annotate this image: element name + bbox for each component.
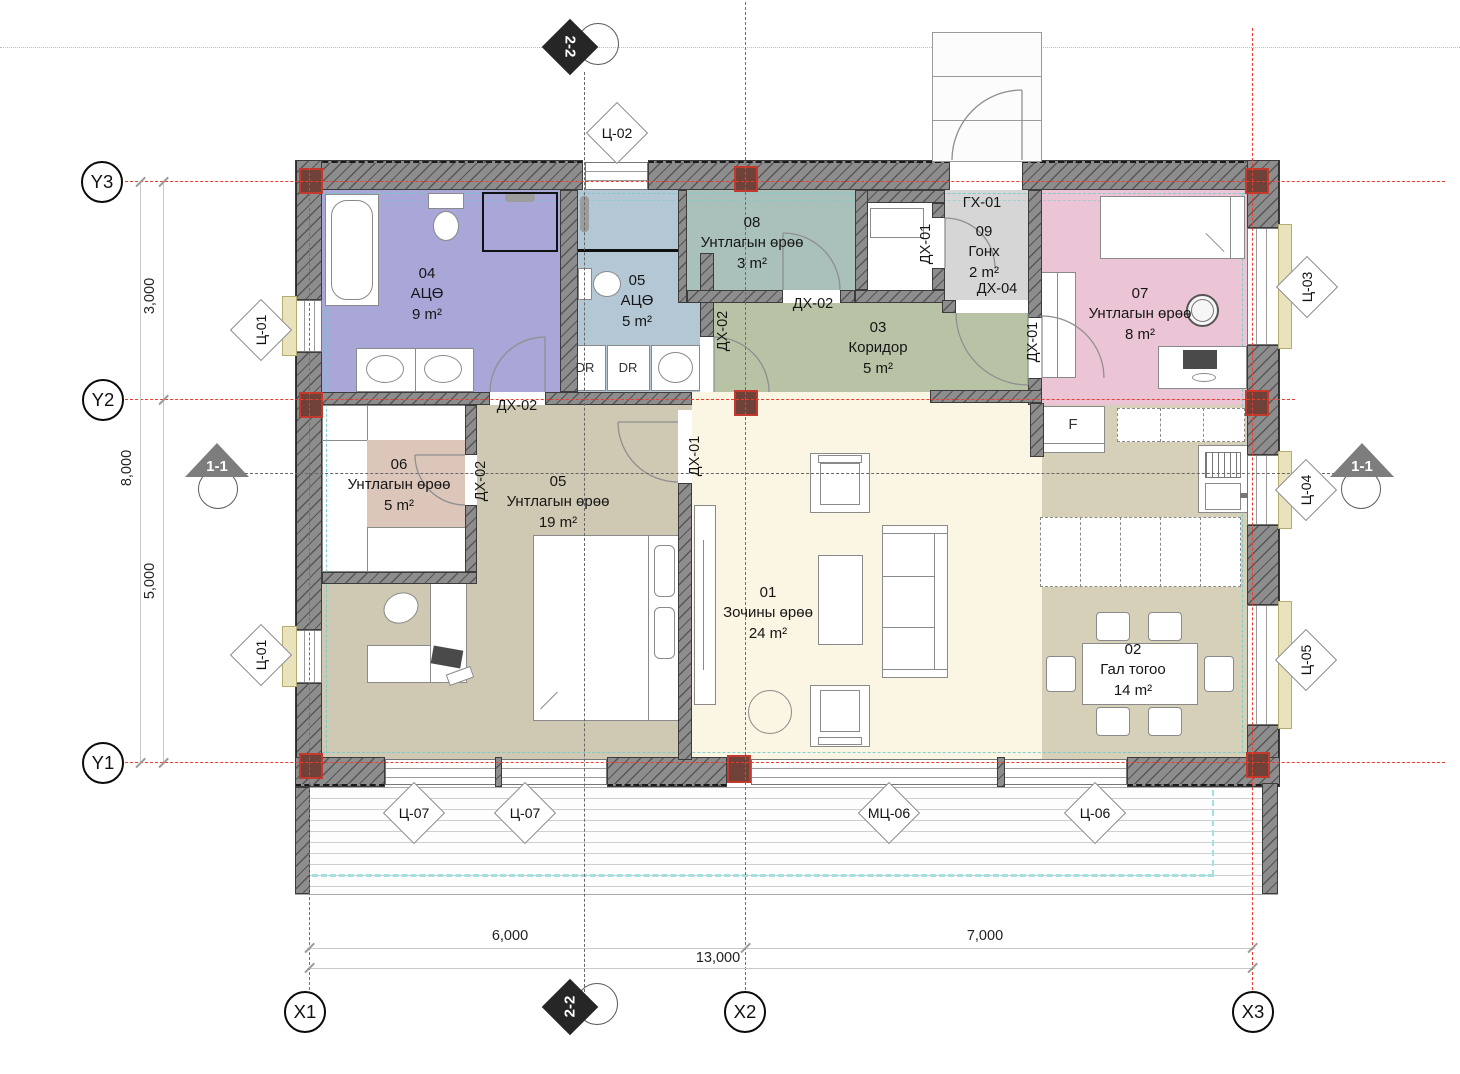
grid-line-y3 [120, 181, 1445, 182]
dimension-text: 7,000 [945, 928, 1025, 944]
axis-bubble-x1: X1 [284, 991, 326, 1033]
grid-line-x1 [309, 168, 310, 1010]
room-label-06: 06Унтлагын өрөө5 m² [319, 455, 479, 516]
door-tag-dh02: ДХ-02 [715, 301, 731, 361]
section-marker-label: 1-1 [1332, 458, 1392, 475]
grid-line-y2 [120, 399, 1295, 400]
window-tag-c01: Ц-01 [235, 629, 287, 681]
room-label-03: 03Коридор5 m² [798, 318, 958, 379]
room-label-04: 04АЦӨ9 m² [347, 264, 507, 325]
door-arc-vestibule [956, 313, 1028, 385]
dimension-line [163, 182, 164, 763]
section-marker-label: 2-2 [562, 992, 579, 1022]
door-tag-dh01: ДХ-01 [1025, 312, 1041, 372]
window-tag-c02: Ц-02 [591, 107, 643, 159]
window-tag-c07: Ц-07 [499, 787, 551, 839]
door-arc-entrance [952, 90, 1022, 160]
dimension-line [140, 182, 141, 763]
room-label-01: 01Зочины өрөө24 m² [688, 583, 848, 644]
room-label-07: 07Унтлагын өрөө8 m² [1060, 284, 1220, 345]
window-tag-c01: Ц-01 [235, 304, 287, 356]
axis-bubble-x3: X3 [1232, 991, 1274, 1033]
door-tag-dh02: ДХ-02 [477, 398, 557, 414]
dimension-text: 5,000 [142, 551, 158, 611]
door-tag-gh01: ГХ-01 [942, 195, 1022, 211]
door-tag-dh02: ДХ-02 [773, 296, 853, 312]
axis-bubble-y3: Y3 [81, 161, 123, 203]
window-tag-c06: Ц-06 [1069, 787, 1121, 839]
grid-line-y1 [120, 762, 1445, 763]
dimension-text: 8,000 [119, 438, 135, 498]
section-line-2-2 [584, 72, 585, 1002]
door-tag-dh04: ДХ-04 [957, 281, 1037, 297]
section-marker-label: 2-2 [562, 32, 579, 62]
room-label-08: 08Унтлагын өрөө3 m² [672, 213, 832, 274]
dimension-text: 13,000 [678, 950, 758, 966]
grid-line-x3 [1252, 28, 1253, 1010]
grid-line-x2 [745, 2, 746, 1010]
dimension-text: 6,000 [470, 928, 550, 944]
room-label-02: 02Гал тогоо14 m² [1053, 640, 1213, 701]
dresser-label: DR [617, 360, 639, 375]
axis-bubble-x2: X2 [724, 991, 766, 1033]
door-arcs-overlay [0, 0, 1460, 1074]
dimension-text: 3,000 [142, 266, 158, 326]
fridge-label: F [1063, 416, 1083, 433]
room-label-09: 09Гонх2 m² [904, 222, 1064, 283]
dimension-line [307, 948, 1255, 949]
dresser-label: DR [574, 360, 596, 375]
room-label-05-bath: 05АЦӨ5 m² [557, 271, 717, 332]
door-arc-bath-04 [490, 337, 545, 392]
window-tag-c07: Ц-07 [388, 787, 440, 839]
window-tag-c05: Ц-05 [1280, 634, 1332, 686]
window-tag-mc06: МЦ-06 [863, 787, 915, 839]
window-tag-c04: Ц-04 [1280, 464, 1332, 516]
axis-bubble-y2: Y2 [82, 379, 124, 421]
window-tag-c03: Ц-03 [1281, 261, 1333, 313]
room-label-05-bedroom: 05Унтлагын өрөө19 m² [478, 472, 638, 533]
floor-plan-canvas: 3,000 8,000 5,000 6,000 7,000 13,000 Y3 … [0, 0, 1460, 1074]
section-marker-label: 1-1 [187, 458, 247, 475]
axis-bubble-y1: Y1 [82, 742, 124, 784]
door-tag-dh01: ДХ-01 [687, 426, 703, 486]
dimension-line [307, 968, 1255, 969]
